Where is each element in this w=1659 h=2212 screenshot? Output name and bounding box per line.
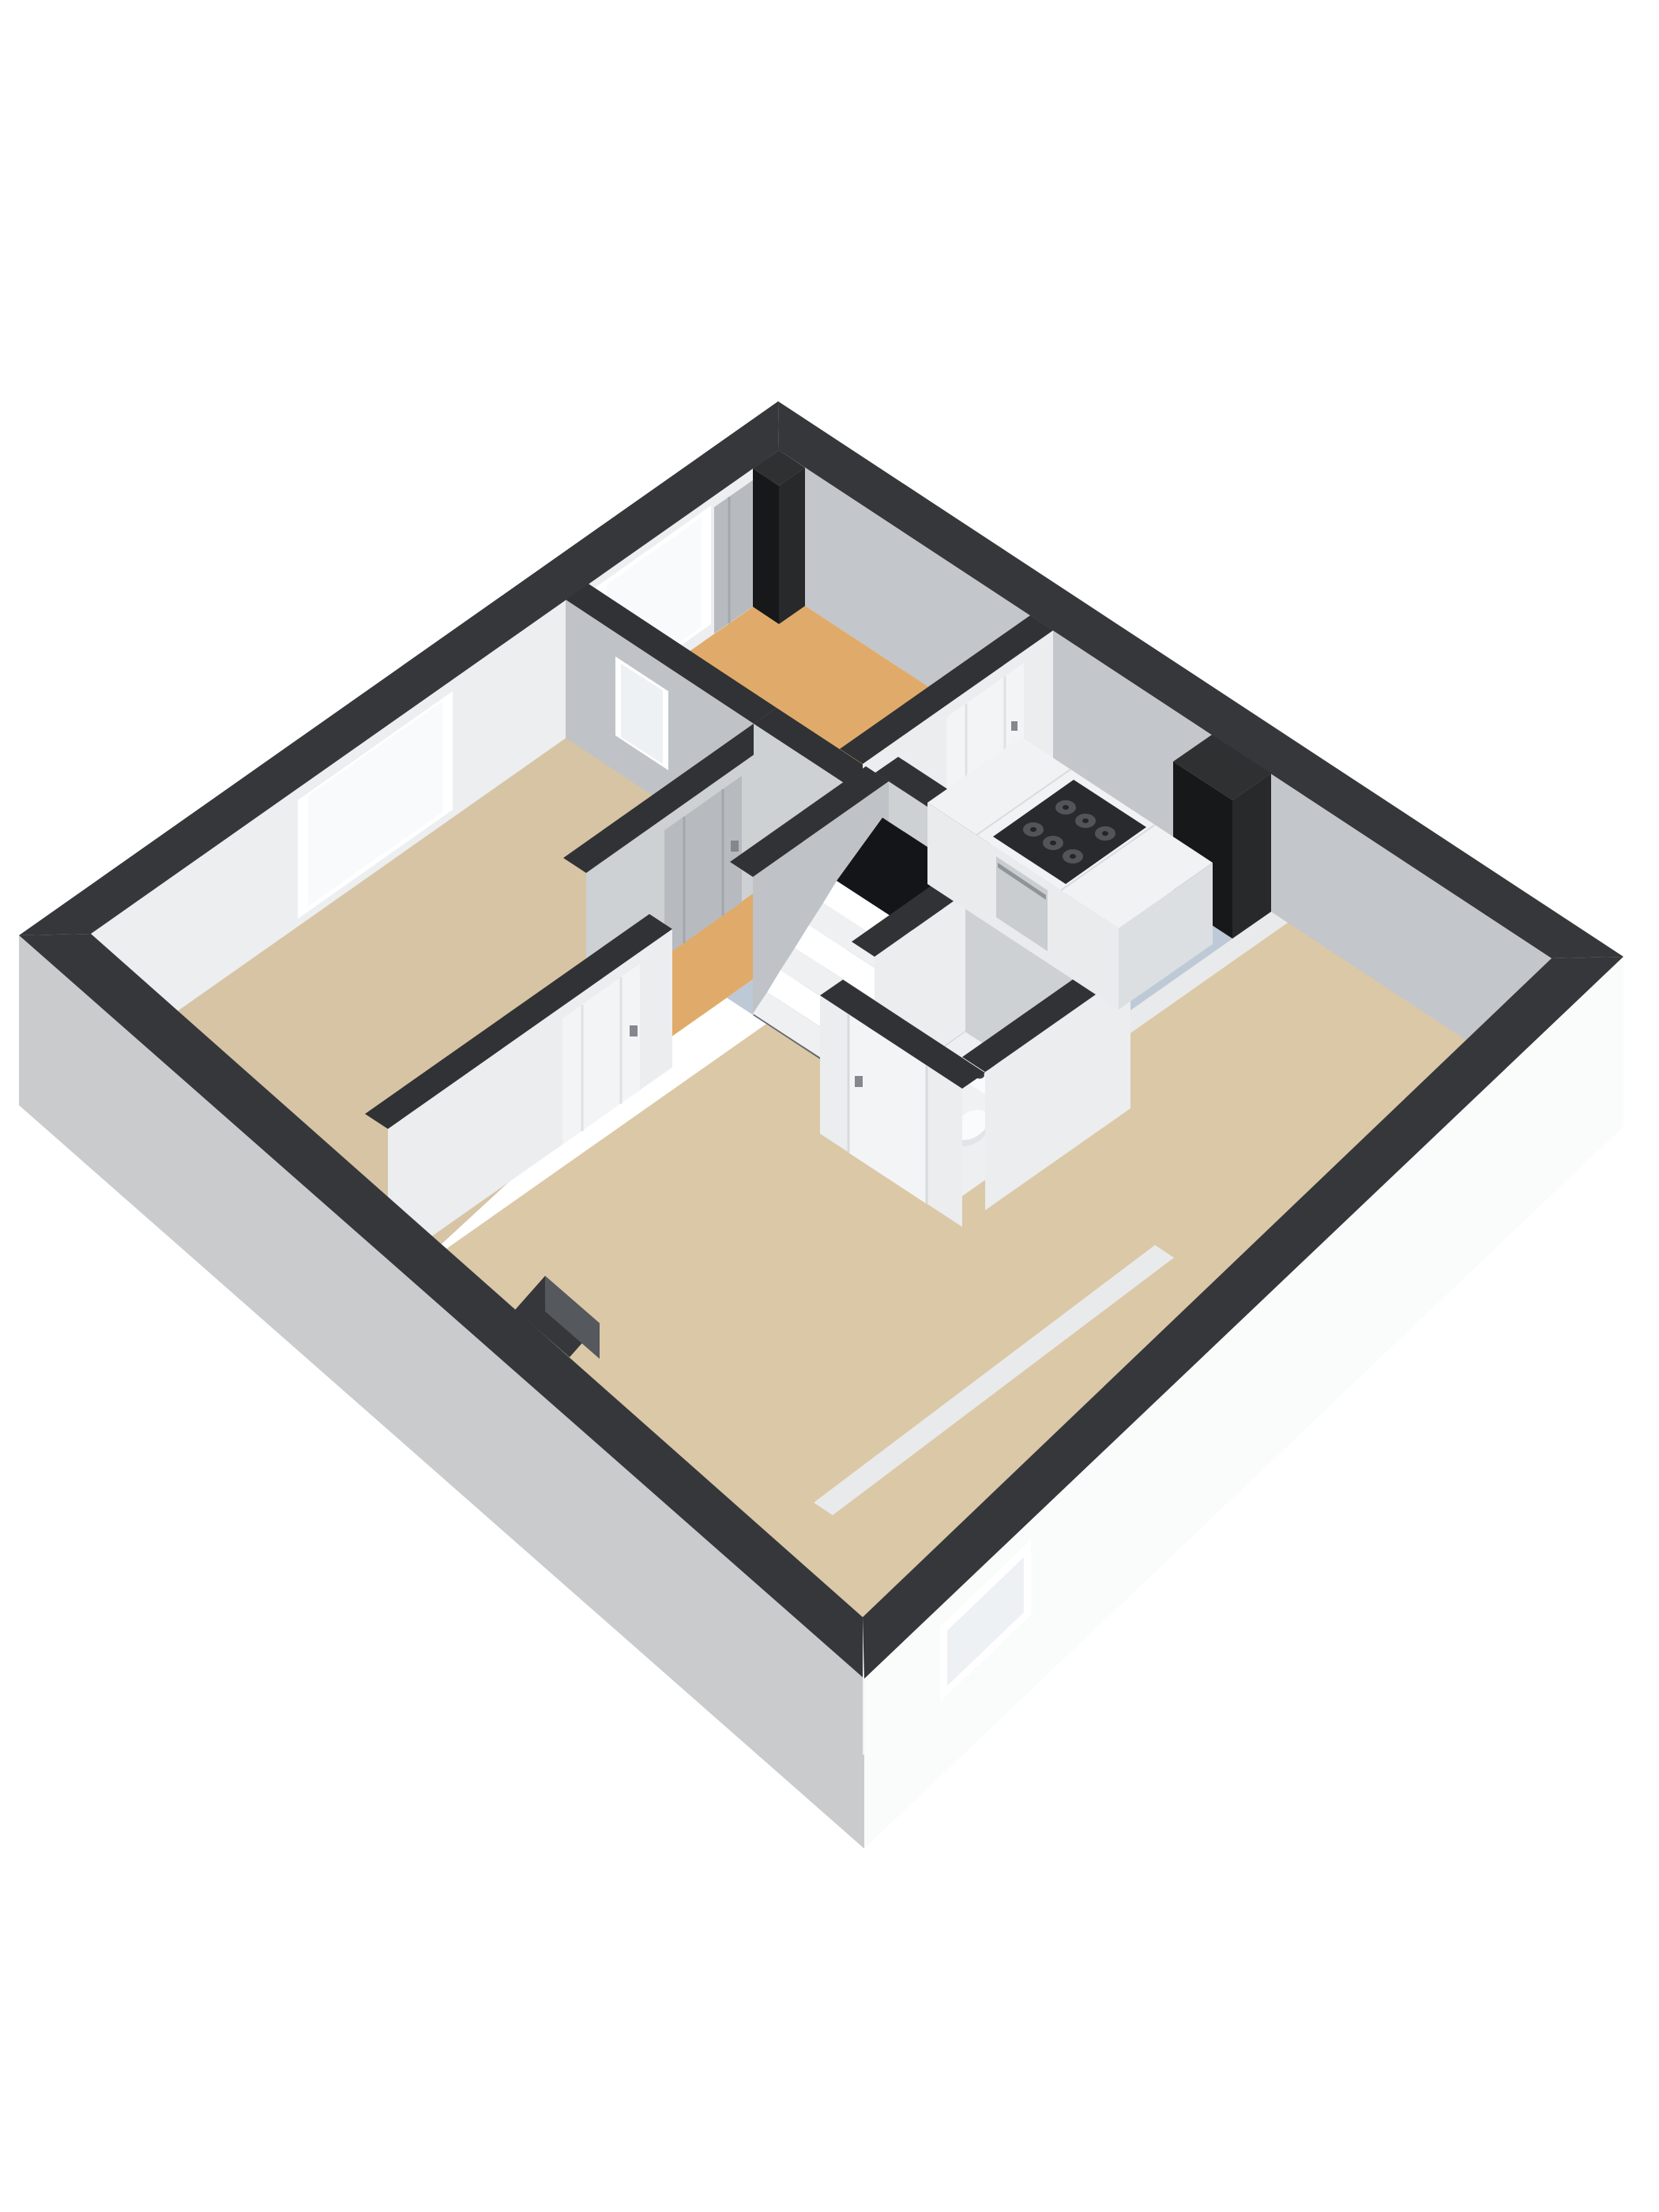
burner-center (1030, 827, 1036, 832)
duct-column-side-face (779, 468, 805, 624)
burner-center (1063, 805, 1069, 810)
floorplan-canvas (0, 0, 1659, 2212)
duct-column (753, 450, 805, 624)
floorplan-3d-render (0, 0, 1659, 2212)
burner-center (1082, 818, 1089, 823)
corridor-door-handle (731, 841, 739, 852)
burner-center (1050, 841, 1056, 845)
wc-door-handle (855, 1076, 863, 1087)
bottomroom-door-handle (630, 1025, 638, 1036)
chimney-side-face (1232, 773, 1271, 939)
burner-center (1102, 831, 1108, 836)
burner-center (1070, 854, 1076, 859)
kitchen-door-handle (1011, 721, 1018, 731)
duct-column-front-face (753, 468, 779, 624)
